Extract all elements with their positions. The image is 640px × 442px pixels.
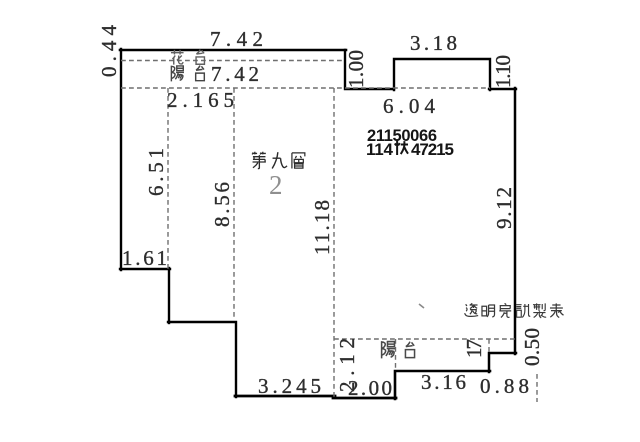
svg-text:8.56: 8.56 — [210, 182, 234, 227]
svg-text:1.10: 1.10 — [491, 55, 515, 88]
svg-text:6.04: 6.04 — [383, 94, 436, 118]
svg-text:2.165: 2.165 — [167, 88, 234, 112]
svg-text:9.12: 9.12 — [492, 187, 516, 229]
svg-text:3.18: 3.18 — [410, 31, 457, 55]
svg-text:6.51: 6.51 — [144, 148, 168, 196]
svg-text:3.16: 3.16 — [421, 370, 466, 394]
svg-text:3.245: 3.245 — [258, 374, 321, 398]
svg-text:0.44: 0.44 — [97, 25, 121, 78]
svg-text:47215: 47215 — [411, 140, 454, 159]
svg-text:17: 17 — [462, 339, 486, 358]
svg-text:2: 2 — [269, 170, 283, 200]
svg-text:7.42: 7.42 — [210, 27, 263, 51]
svg-text:1.00: 1.00 — [344, 50, 368, 88]
svg-text:11.18: 11.18 — [310, 200, 334, 255]
svg-text:7.42: 7.42 — [211, 62, 259, 86]
svg-text:1.61: 1.61 — [122, 246, 167, 270]
svg-text:0.88: 0.88 — [480, 374, 529, 398]
svg-text:2.00: 2.00 — [348, 376, 392, 400]
svg-text:114: 114 — [366, 140, 394, 159]
svg-text:0.50: 0.50 — [520, 328, 544, 366]
